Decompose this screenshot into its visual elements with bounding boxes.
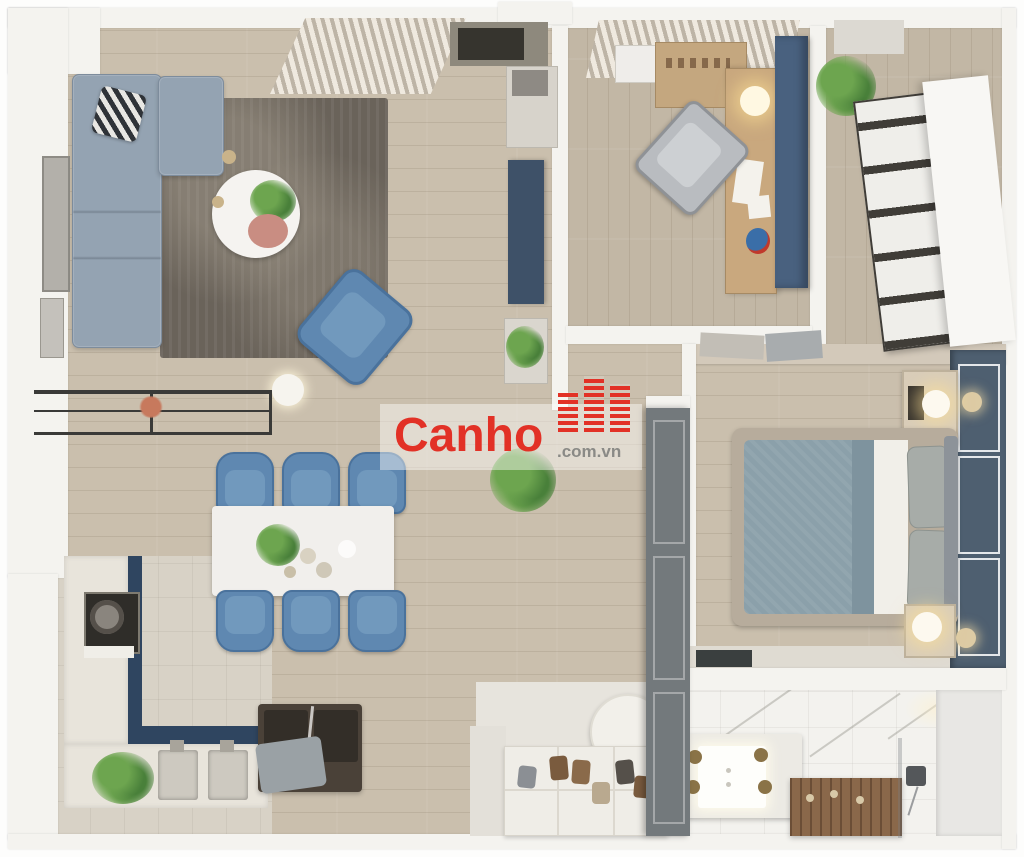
sink-basin	[208, 750, 248, 800]
media-cabinet-item	[512, 70, 548, 96]
left-wall	[8, 8, 68, 578]
door-inset	[653, 692, 685, 824]
bed-throw	[852, 440, 876, 614]
bed-headboard	[944, 436, 958, 618]
dining-plate	[316, 562, 332, 578]
chair-seat	[357, 596, 397, 634]
watermark-brand-text: Canho	[394, 412, 543, 460]
building-bar-column	[610, 384, 630, 432]
mat-item	[856, 796, 864, 804]
dining-table-plant	[256, 524, 300, 566]
mat-item	[806, 794, 814, 802]
sink-drain	[726, 782, 731, 787]
dining-plate	[338, 540, 356, 558]
closet-top-cabinet	[834, 20, 904, 54]
sliding-door-panel	[646, 408, 690, 836]
bedroom-cabinet-inset	[696, 650, 752, 667]
shoe-pair	[517, 765, 537, 789]
desk-lamp	[740, 86, 770, 116]
bronze-fixture	[754, 748, 768, 762]
bedside-lamp	[912, 612, 942, 642]
dining-chair	[282, 590, 340, 652]
chair-seat	[225, 596, 265, 634]
sideboard-decor	[666, 58, 730, 68]
console-decor	[138, 396, 164, 418]
shoe-pair	[571, 759, 591, 784]
blue-tall-cabinet	[775, 36, 808, 288]
mat-item	[830, 790, 838, 798]
bottom-wall	[8, 834, 1016, 849]
dining-chair	[216, 452, 274, 514]
faucet	[220, 740, 234, 752]
dining-chair	[282, 452, 340, 514]
decor-ball	[222, 150, 236, 164]
shower-glass-panel	[898, 738, 902, 838]
entry-step	[470, 726, 506, 836]
bed-sheet-fold	[874, 440, 908, 614]
wall-art-frame-small	[40, 298, 64, 358]
faucet	[170, 740, 184, 752]
floor-lamp	[272, 374, 304, 406]
teak-shower-mat	[790, 778, 902, 836]
door-inset	[653, 556, 685, 680]
shower-zone	[936, 690, 1002, 836]
bedside-lamp	[922, 390, 950, 418]
sink-basin	[158, 750, 198, 800]
chair-seat	[357, 470, 397, 508]
cooking-pan	[90, 600, 124, 634]
ac-vent	[458, 28, 524, 60]
shower-mixer	[906, 766, 926, 786]
building-bar-column	[584, 376, 604, 432]
tv-cabinet	[508, 160, 544, 304]
console-leg	[269, 394, 272, 432]
building-bar-column	[558, 392, 578, 432]
cutting-board	[84, 646, 134, 658]
top-wall-notch	[498, 2, 572, 24]
shelf-plant	[506, 326, 544, 368]
pink-tray	[248, 214, 288, 248]
shoe-pair	[615, 759, 635, 785]
dining-chair	[348, 590, 406, 652]
counter-navy-edge-horizontal	[142, 726, 268, 744]
bedroom-top-furniture	[765, 330, 823, 362]
chair-seat	[291, 596, 331, 634]
accent-wall-trim	[958, 456, 1000, 554]
bedroom-top-furniture	[699, 332, 764, 359]
dining-bowl	[284, 566, 296, 578]
buildings-icon	[558, 392, 636, 448]
dining-plate	[300, 548, 316, 564]
shoe-cabinet-divider	[613, 747, 615, 835]
wall-art-frame	[42, 156, 70, 292]
dining-chair	[216, 590, 274, 652]
bathroom-top-wall	[676, 668, 1006, 690]
sink-drain	[726, 768, 731, 773]
wall-sconce	[956, 628, 976, 648]
chair-seat	[291, 470, 331, 508]
desk-accessory	[746, 228, 770, 254]
desk-paper	[747, 195, 771, 219]
floor-plan-render: Canho .com.vn	[0, 0, 1024, 857]
chair-seat	[225, 470, 265, 508]
kitchen-plant	[92, 752, 154, 804]
bronze-fixture	[758, 780, 772, 794]
shoe-pair	[592, 782, 610, 804]
sofa-chaise-section	[158, 76, 224, 176]
gray-cloth	[255, 736, 327, 795]
shoe-pair	[549, 755, 569, 780]
wall-sconce	[962, 392, 982, 412]
bronze-fixture	[688, 750, 702, 764]
left-wall-lower	[8, 574, 58, 840]
door-inset	[653, 420, 685, 544]
decor-ball	[212, 196, 224, 208]
